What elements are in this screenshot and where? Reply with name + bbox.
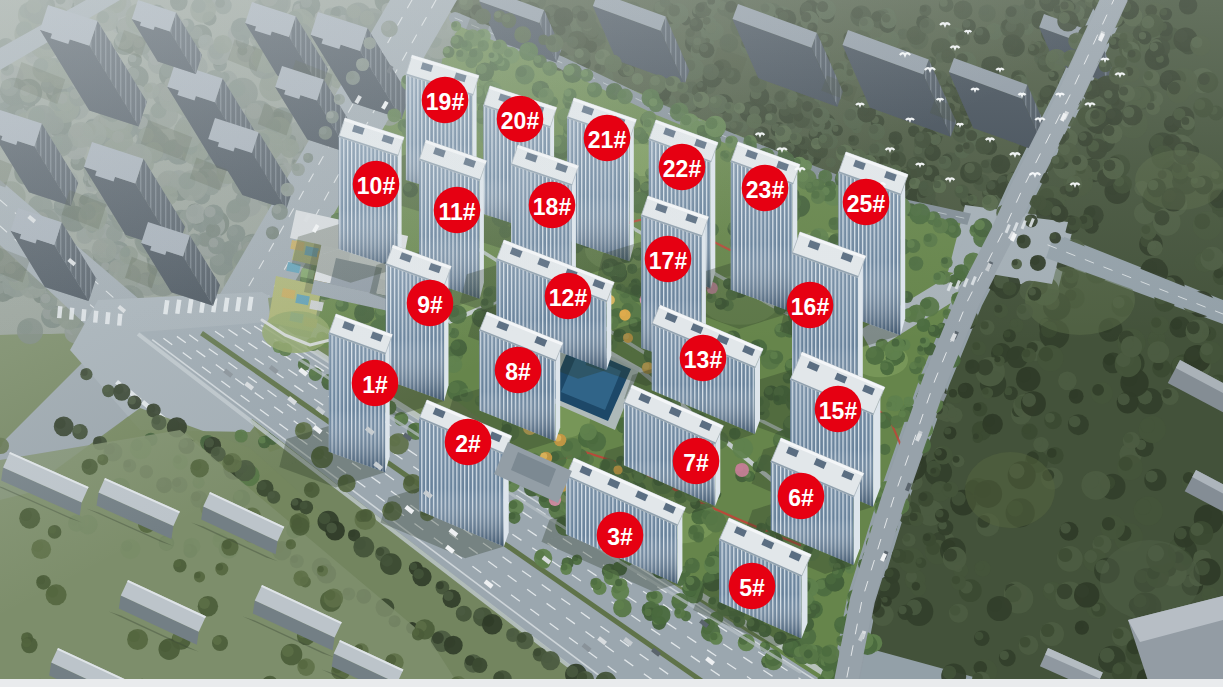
svg-text:22#: 22# [663, 156, 702, 182]
svg-text:13#: 13# [684, 347, 723, 373]
svg-text:9#: 9# [417, 292, 443, 318]
svg-text:1#: 1# [362, 372, 388, 398]
svg-text:19#: 19# [426, 89, 465, 115]
svg-text:10#: 10# [357, 173, 396, 199]
svg-text:2#: 2# [455, 431, 481, 457]
svg-text:23#: 23# [746, 177, 785, 203]
svg-text:21#: 21# [588, 127, 627, 153]
svg-text:17#: 17# [649, 248, 688, 274]
svg-text:11#: 11# [438, 199, 475, 225]
svg-text:18#: 18# [533, 194, 572, 220]
svg-text:25#: 25# [847, 191, 886, 217]
svg-text:3#: 3# [607, 524, 633, 550]
svg-text:20#: 20# [501, 108, 540, 134]
svg-text:15#: 15# [819, 398, 858, 424]
svg-text:7#: 7# [683, 450, 709, 476]
svg-text:6#: 6# [788, 485, 814, 511]
svg-text:16#: 16# [791, 294, 830, 320]
svg-text:8#: 8# [505, 359, 531, 385]
svg-text:12#: 12# [549, 285, 588, 311]
svg-text:5#: 5# [739, 575, 765, 601]
